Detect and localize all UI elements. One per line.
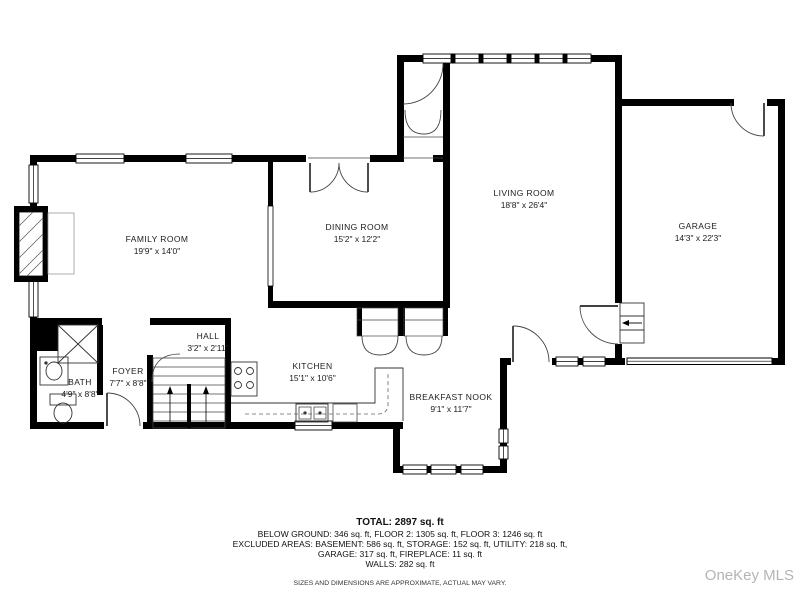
room-name: KITCHEN — [275, 360, 350, 372]
room-name: LIVING ROOM — [454, 187, 594, 199]
room-dims: 7'7" x 8'8" — [93, 377, 163, 389]
walls-area: WALLS: 282 sq. ft — [0, 559, 800, 569]
room-label-garage: GARAGE 14'3" x 22'3" — [628, 220, 768, 244]
room-label-foyer: FOYER 7'7" x 8'8" — [93, 365, 163, 389]
windows — [29, 54, 605, 474]
dishwasher — [333, 404, 357, 422]
room-label-hall: HALL 3'2" x 2'11" — [172, 330, 244, 354]
toilet-bowl — [54, 403, 72, 423]
area-summary: TOTAL: 2897 sq. ft BELOW GROUND: 346 sq.… — [0, 517, 800, 588]
fireplace — [14, 206, 74, 282]
room-dims: 15'1" x 10'6" — [275, 372, 350, 384]
room-dims: 18'8" x 26'4" — [454, 199, 594, 211]
room-name: GARAGE — [628, 220, 768, 232]
room-dims: 19'9" x 14'0" — [87, 245, 227, 257]
total-area: TOTAL: 2897 sq. ft — [0, 517, 800, 529]
room-label-dining-room: DINING ROOM 15'2" x 12'2" — [287, 221, 427, 245]
room-name: BREAKFAST NOOK — [391, 391, 511, 403]
stove — [231, 362, 257, 396]
room-label-family-room: FAMILY ROOM 19'9" x 14'0" — [87, 233, 227, 257]
floor-areas: BELOW GROUND: 346 sq. ft, FLOOR 2: 1305 … — [0, 529, 800, 539]
room-dims: 4'9" x 8'8" — [48, 388, 112, 400]
room-name: FOYER — [93, 365, 163, 377]
room-name: HALL — [172, 330, 244, 342]
room-dims: 9'1" x 11'7" — [391, 403, 511, 415]
room-dims: 14'3" x 22'3" — [628, 232, 768, 244]
garage-overhead-door — [627, 358, 772, 365]
room-name: DINING ROOM — [287, 221, 427, 233]
room-label-living-room: LIVING ROOM 18'8" x 26'4" — [454, 187, 594, 211]
room-name: FAMILY ROOM — [87, 233, 227, 245]
room-label-breakfast-nook: BREAKFAST NOOK 9'1" x 11'7" — [391, 391, 511, 415]
excluded-areas: EXCLUDED AREAS: BASEMENT: 586 sq. ft, ST… — [0, 539, 800, 549]
disclaimer: SIZES AND DIMENSIONS ARE APPROXIMATE, AC… — [0, 579, 800, 588]
floorplan-page: FAMILY ROOM 19'9" x 14'0" DINING ROOM 15… — [0, 0, 800, 600]
room-label-kitchen: KITCHEN 15'1" x 10'6" — [275, 360, 350, 384]
garage-fireplace: GARAGE: 317 sq. ft, FIREPLACE: 11 sq. ft — [0, 549, 800, 559]
room-dims: 15'2" x 12'2" — [287, 233, 427, 245]
wall-openings — [104, 98, 772, 430]
floorplan-drawing — [0, 0, 800, 600]
garage-steps — [620, 303, 644, 343]
onekey-mls-watermark: OneKey MLS — [705, 567, 794, 584]
room-dims: 3'2" x 2'11" — [172, 342, 244, 354]
